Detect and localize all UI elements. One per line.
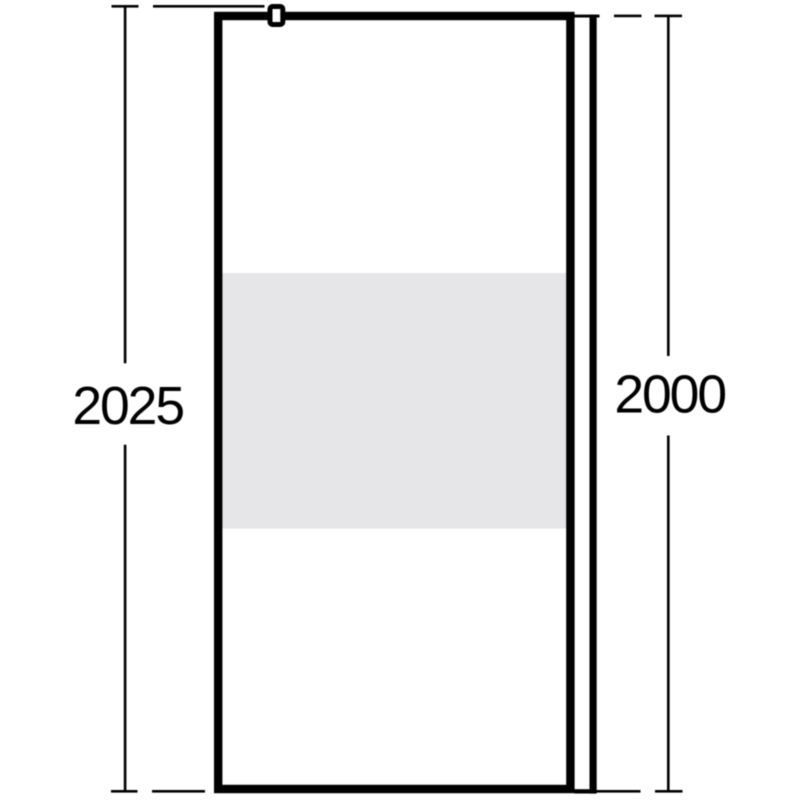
svg-text:2025: 2025: [72, 377, 183, 436]
svg-text:2000: 2000: [614, 365, 725, 424]
